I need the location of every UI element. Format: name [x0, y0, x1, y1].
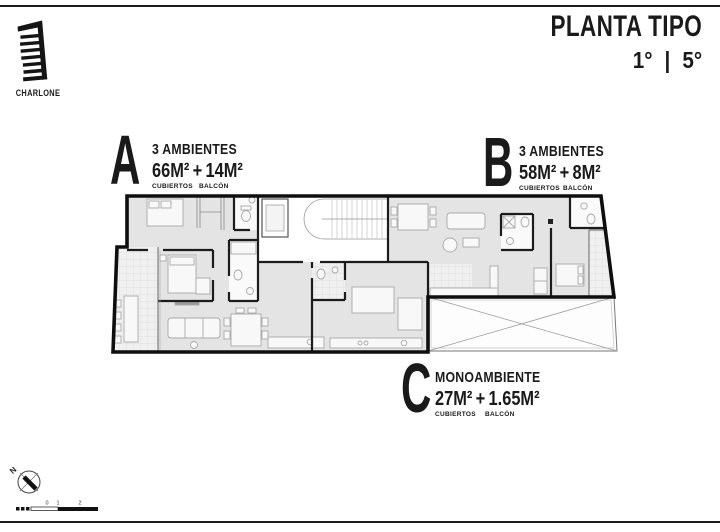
north-label: N — [8, 465, 18, 476]
desk-a — [196, 278, 210, 294]
tv-a — [175, 302, 199, 305]
scale-bar: 0 1 2 — [16, 501, 98, 512]
terrace — [428, 297, 617, 351]
bed-c — [398, 298, 422, 330]
coffee-table-b — [463, 238, 479, 247]
scale-tick-1: 1 — [56, 501, 59, 507]
dining-table-b — [398, 204, 428, 230]
dining-table-a — [231, 314, 261, 346]
scale-tick-2: 2 — [78, 501, 81, 507]
rug-b — [443, 238, 457, 252]
column — [548, 219, 553, 224]
floor-plan-page: CHARLONE PLANTA TIPO 1° | 5° A 3 AMBIENT… — [0, 0, 720, 532]
balcony-table-a — [124, 296, 138, 342]
sofa-b — [447, 213, 485, 229]
kitchen-counter-a — [268, 337, 324, 348]
bathroom-c — [312, 262, 345, 300]
toilet-icon — [242, 211, 251, 222]
toilet-b — [570, 197, 604, 228]
sofa-a — [168, 318, 220, 338]
kitchen-island-c — [352, 287, 394, 313]
floor-plan-drawing: N 0 1 2 — [0, 0, 720, 532]
coffee-table-a — [191, 342, 198, 349]
sink-icon — [249, 197, 255, 203]
kitchen-counter-c — [330, 338, 422, 348]
compass: N — [8, 465, 40, 493]
scale-tick-0: 0 — [45, 501, 48, 507]
common-core — [262, 199, 388, 239]
kitchen-counter-b — [430, 288, 498, 296]
shower-a — [231, 242, 256, 254]
